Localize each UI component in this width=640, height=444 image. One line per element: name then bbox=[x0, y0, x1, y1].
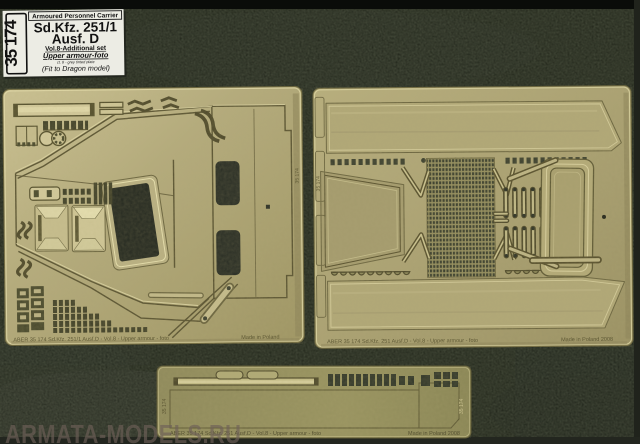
svg-text:(Fit to Dragon model): (Fit to Dragon model) bbox=[42, 63, 110, 73]
svg-text:35 174: 35 174 bbox=[1, 19, 21, 67]
svg-text:Upper armour-foto: Upper armour-foto bbox=[43, 50, 109, 60]
svg-text:ARMATA-MODELS.RU: ARMATA-MODELS.RU bbox=[5, 420, 241, 444]
